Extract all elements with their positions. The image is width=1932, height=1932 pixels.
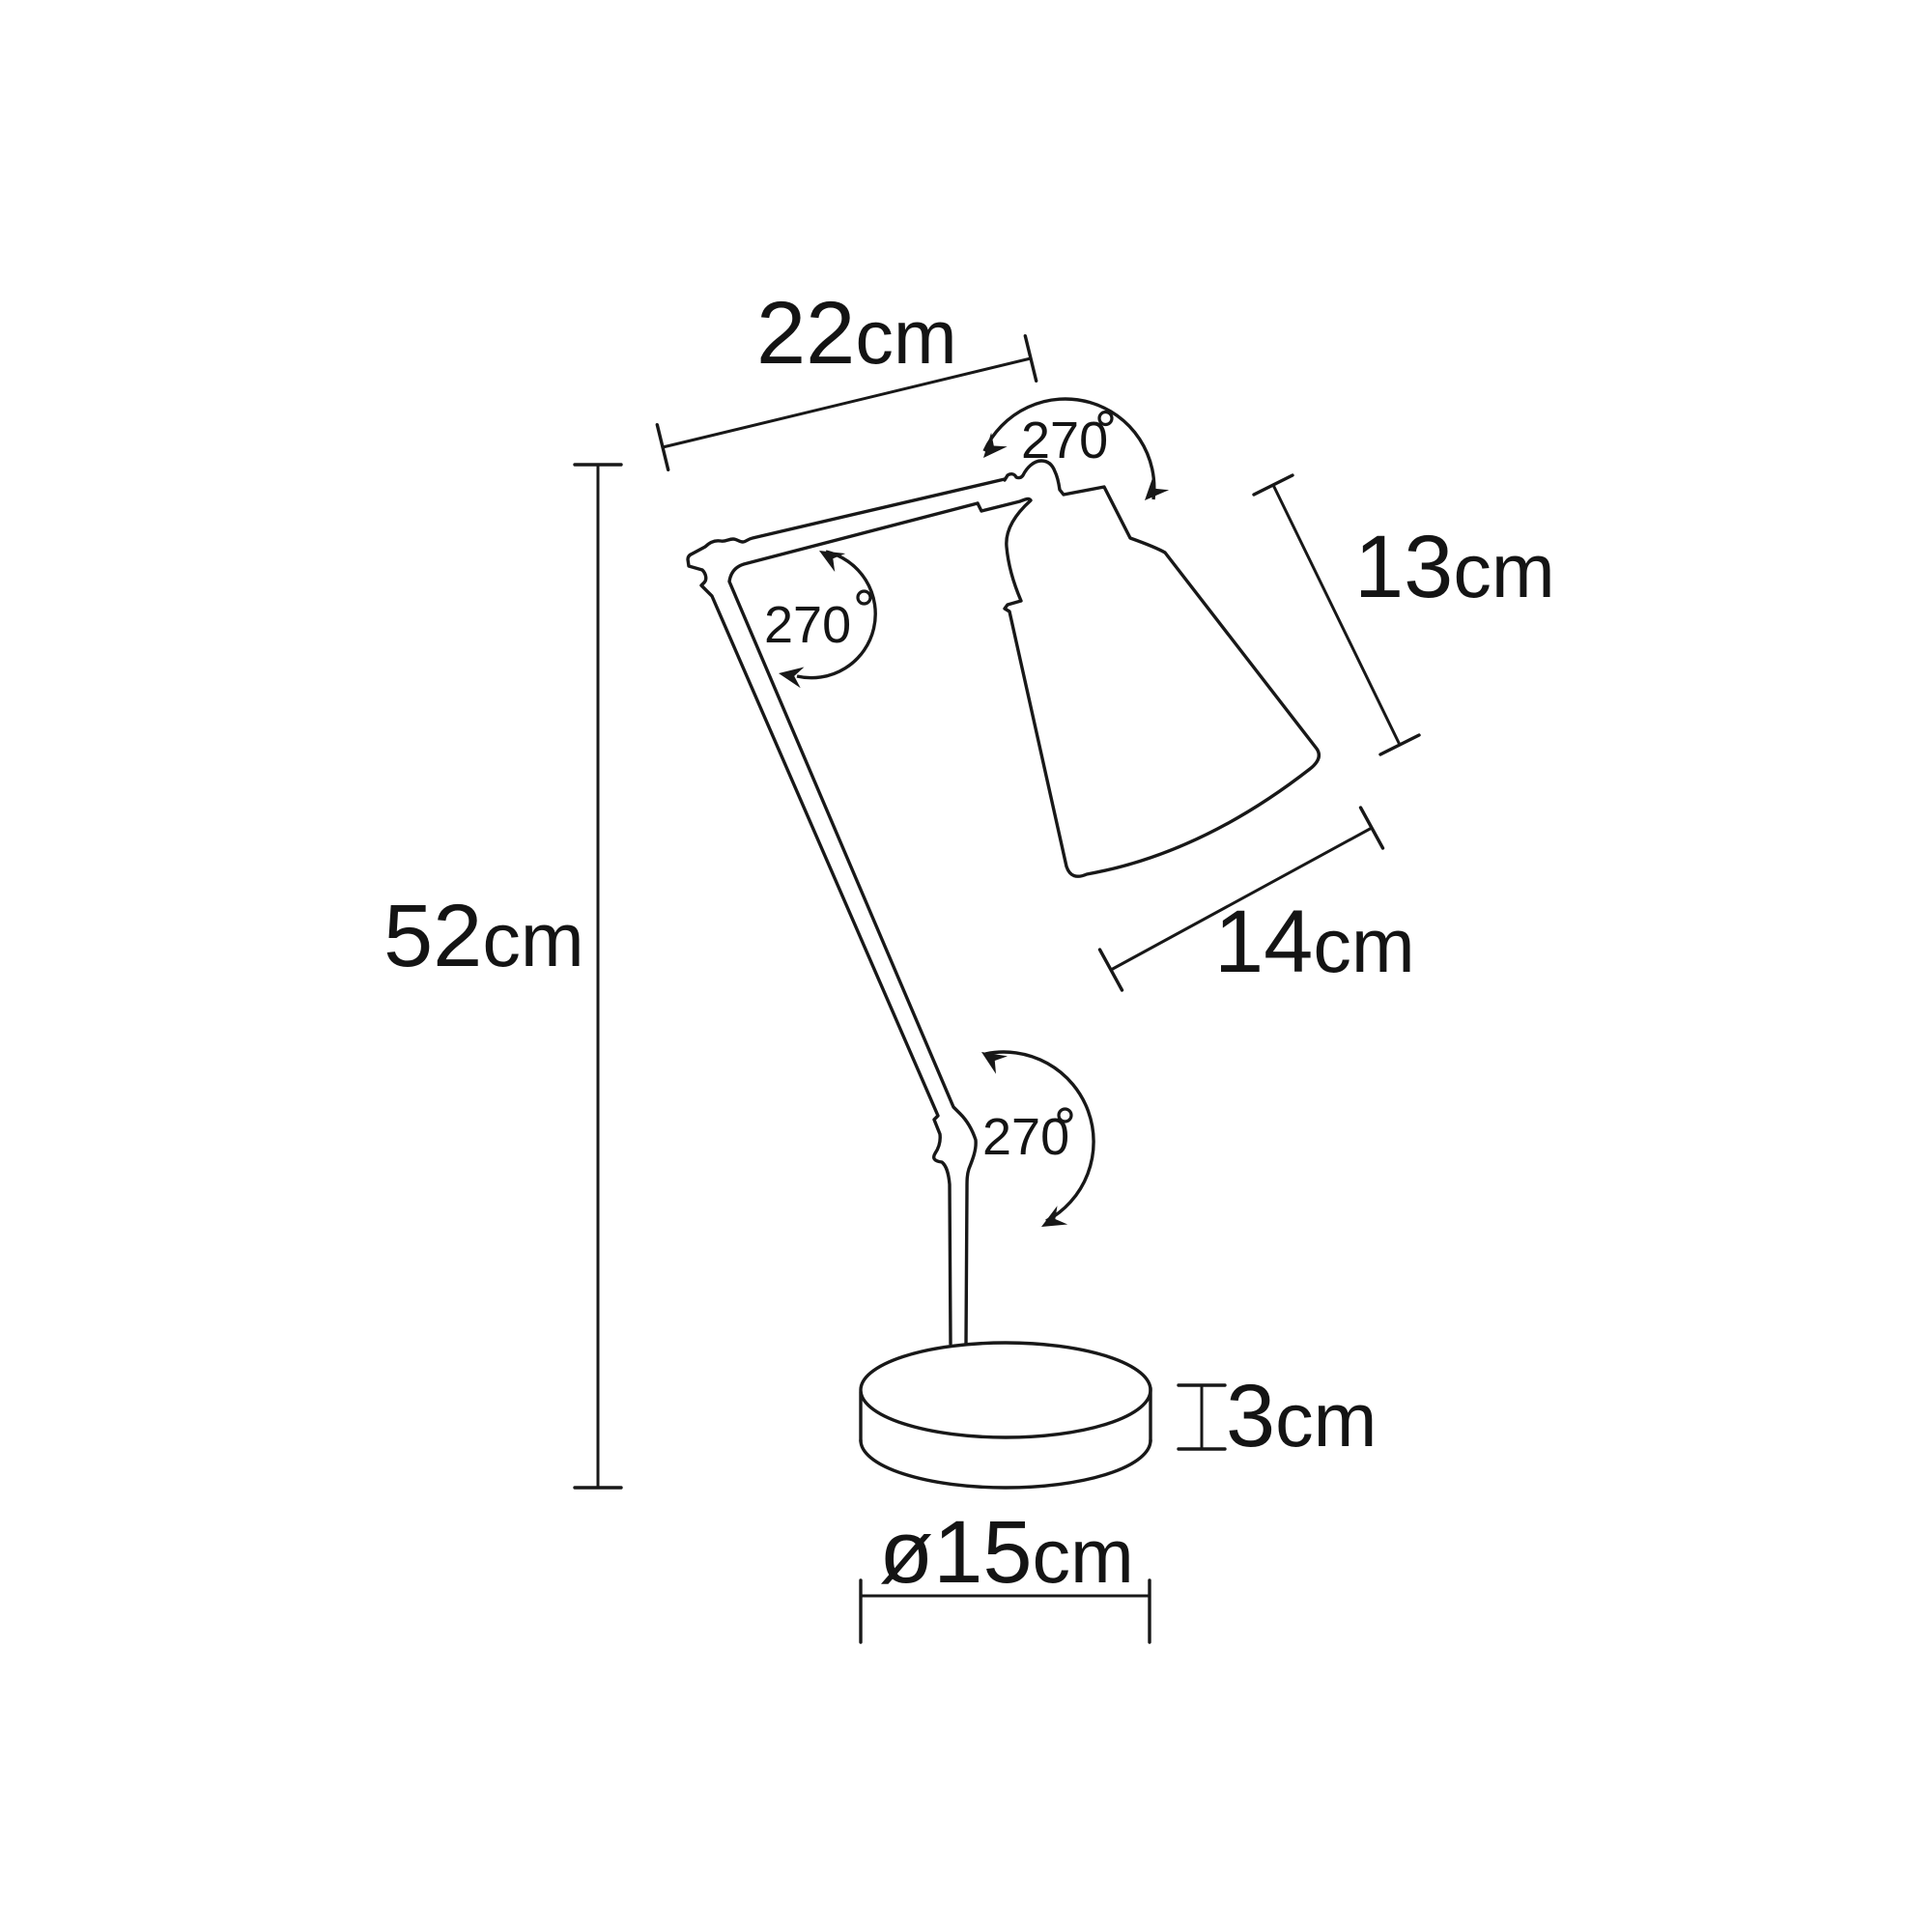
svg-text:270: 270 bbox=[982, 1108, 1069, 1166]
svg-text:270: 270 bbox=[764, 596, 851, 654]
svg-text:3cm: 3cm bbox=[1226, 1367, 1377, 1465]
svg-text:22cm: 22cm bbox=[756, 284, 957, 383]
svg-text:52cm: 52cm bbox=[384, 887, 584, 985]
svg-text:ø15cm: ø15cm bbox=[879, 1503, 1134, 1602]
svg-text:270: 270 bbox=[1021, 412, 1108, 469]
svg-text:13cm: 13cm bbox=[1354, 518, 1555, 616]
svg-text:14cm: 14cm bbox=[1214, 893, 1415, 991]
